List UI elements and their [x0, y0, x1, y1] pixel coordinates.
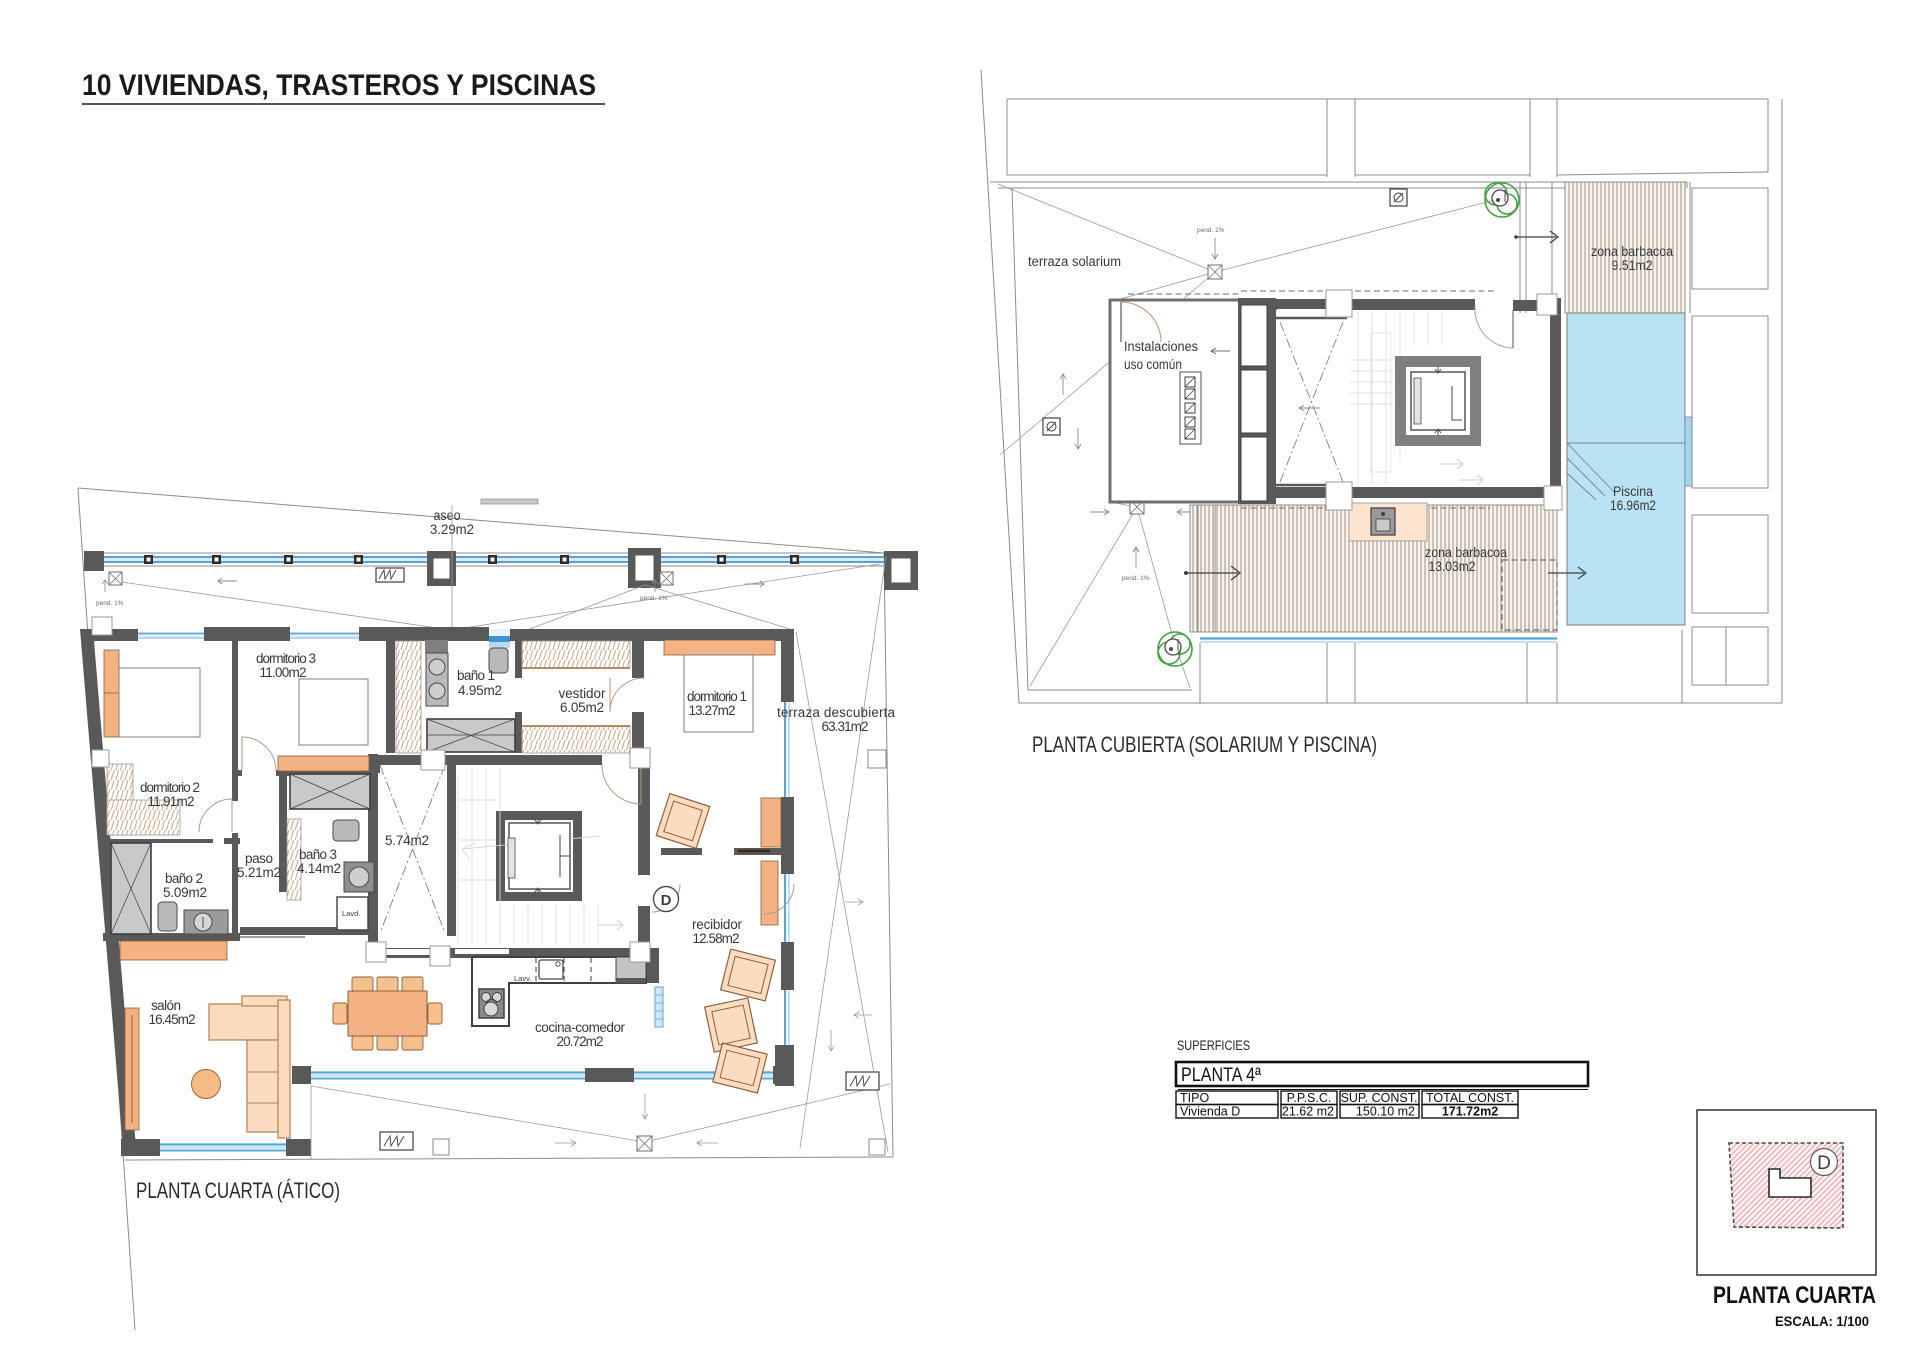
- svg-text:zona barbacoa: zona barbacoa: [1425, 545, 1507, 560]
- svg-text:16.96m2: 16.96m2: [1610, 498, 1656, 513]
- svg-text:D: D: [661, 892, 672, 909]
- svg-text:cocina-comedor: cocina-comedor: [535, 1020, 626, 1035]
- svg-text:ESCALA: 1/100: ESCALA: 1/100: [1775, 1313, 1869, 1329]
- svg-text:paso: paso: [245, 851, 273, 866]
- svg-text:Lavd.: Lavd.: [342, 909, 360, 918]
- svg-text:5.09m2: 5.09m2: [163, 885, 207, 900]
- svg-text:5.74m2: 5.74m2: [385, 833, 429, 848]
- svg-text:171.72m2: 171.72m2: [1442, 1105, 1498, 1119]
- svg-text:TIPO: TIPO: [1180, 1091, 1209, 1105]
- svg-text:dormitorio 1: dormitorio 1: [687, 689, 747, 704]
- svg-text:uso común: uso común: [1124, 357, 1182, 372]
- svg-text:Lavv.: Lavv.: [514, 974, 531, 983]
- svg-text:4.95m2: 4.95m2: [458, 683, 502, 698]
- svg-text:Vivienda D: Vivienda D: [1180, 1105, 1240, 1119]
- svg-text:terraza solarium: terraza solarium: [1028, 254, 1121, 269]
- svg-text:baño 3: baño 3: [299, 847, 337, 862]
- svg-text:pend. 1%: pend. 1%: [640, 595, 668, 602]
- svg-text:PLANTA CUBIERTA (SOLARIUM Y PI: PLANTA CUBIERTA (SOLARIUM Y PISCINA): [1032, 732, 1377, 757]
- svg-text:PLANTA CUARTA: PLANTA CUARTA: [1713, 1282, 1876, 1309]
- svg-text:baño 1: baño 1: [457, 668, 495, 683]
- svg-text:9.51m2: 9.51m2: [1612, 258, 1653, 273]
- svg-text:6.05m2: 6.05m2: [560, 700, 604, 715]
- svg-text:Instalaciones: Instalaciones: [1124, 339, 1198, 354]
- svg-text:5.21m2: 5.21m2: [237, 865, 281, 880]
- svg-text:16.45m2: 16.45m2: [149, 1012, 196, 1027]
- svg-text:D: D: [1817, 1153, 1831, 1174]
- svg-text:baño 2: baño 2: [165, 871, 203, 886]
- svg-text:dormitorio 2: dormitorio 2: [140, 780, 200, 795]
- svg-text:vestidor: vestidor: [559, 686, 607, 701]
- svg-text:recibidor: recibidor: [692, 917, 743, 932]
- svg-text:13.03m2: 13.03m2: [1429, 559, 1476, 574]
- svg-text:SUP. CONST.: SUP. CONST.: [1341, 1091, 1418, 1105]
- svg-text:21.62 m2: 21.62 m2: [1282, 1105, 1334, 1119]
- svg-text:63.31m2: 63.31m2: [822, 719, 869, 734]
- svg-text:20.72m2: 20.72m2: [557, 1034, 604, 1049]
- svg-text:pend. 1%: pend. 1%: [96, 600, 124, 607]
- svg-text:pend. 1%: pend. 1%: [1122, 575, 1150, 582]
- svg-text:10 VIVIENDAS, TRASTEROS Y PISC: 10 VIVIENDAS, TRASTEROS Y PISCINAS: [82, 69, 596, 102]
- svg-text:11.91m2: 11.91m2: [148, 794, 195, 809]
- svg-text:PLANTA CUARTA (ÁTICO): PLANTA CUARTA (ÁTICO): [136, 1178, 340, 1203]
- svg-text:pend. 1%: pend. 1%: [1197, 227, 1225, 234]
- svg-text:Piscina: Piscina: [1613, 484, 1653, 499]
- svg-text:4.14m2: 4.14m2: [297, 861, 341, 876]
- svg-text:11.00m2: 11.00m2: [260, 665, 307, 680]
- svg-text:TOTAL CONST.: TOTAL CONST.: [1426, 1091, 1514, 1105]
- svg-text:dormitorio 3: dormitorio 3: [256, 651, 316, 666]
- svg-text:13.27m2: 13.27m2: [689, 703, 736, 718]
- svg-text:P.P.S.C.: P.P.S.C.: [1287, 1091, 1332, 1105]
- svg-text:aseo: aseo: [434, 508, 461, 523]
- svg-text:12.58m2: 12.58m2: [693, 931, 740, 946]
- svg-text:terraza descubierta: terraza descubierta: [777, 705, 895, 720]
- svg-text:PLANTA 4ª: PLANTA 4ª: [1181, 1065, 1262, 1086]
- svg-text:150.10 m2: 150.10 m2: [1356, 1105, 1415, 1119]
- svg-text:zona barbacoa: zona barbacoa: [1591, 244, 1673, 259]
- svg-text:salón: salón: [151, 998, 181, 1013]
- svg-text:SUPERFICIES: SUPERFICIES: [1177, 1038, 1250, 1053]
